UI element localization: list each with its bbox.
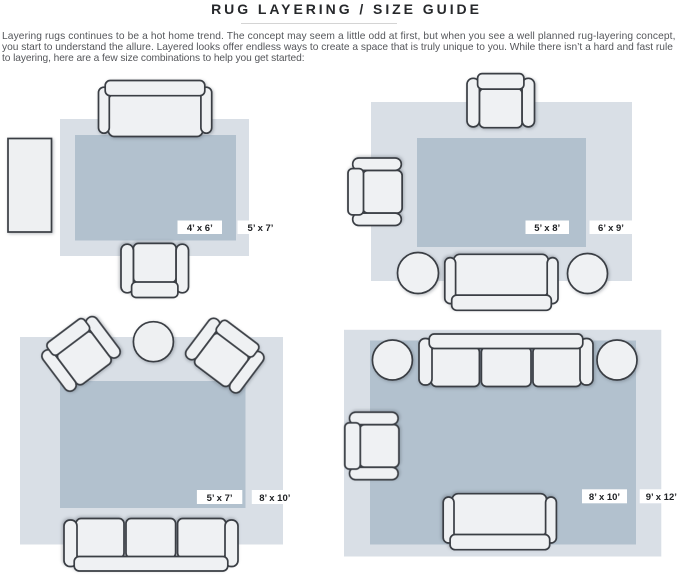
svg-text:9’ x 12’: 9’ x 12’: [646, 492, 677, 503]
svg-text:5’ x 8’: 5’ x 8’: [534, 223, 560, 234]
svg-text:8’ x 10’: 8’ x 10’: [259, 493, 290, 504]
svg-text:4’ x 6’: 4’ x 6’: [187, 223, 213, 234]
svg-text:8’ x 10’: 8’ x 10’: [589, 492, 620, 503]
svg-text:5’ x 7’: 5’ x 7’: [248, 223, 274, 234]
svg-text:5’ x 7’: 5’ x 7’: [207, 493, 233, 504]
svg-text:6’ x 9’: 6’ x 9’: [598, 223, 624, 234]
